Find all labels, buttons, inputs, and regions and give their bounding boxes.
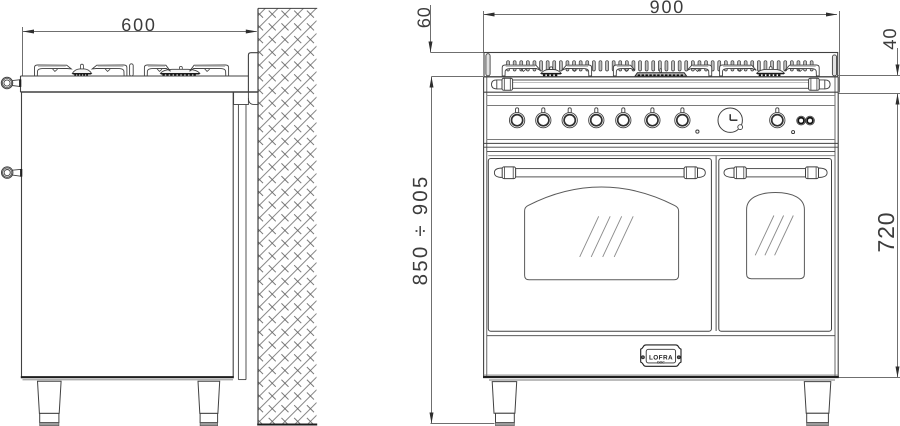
svg-text:850 ÷ 905: 850 ÷ 905 <box>409 174 432 285</box>
svg-text:720: 720 <box>873 212 899 253</box>
svg-text:DOC: DOC <box>657 360 665 364</box>
svg-text:40: 40 <box>879 28 900 50</box>
